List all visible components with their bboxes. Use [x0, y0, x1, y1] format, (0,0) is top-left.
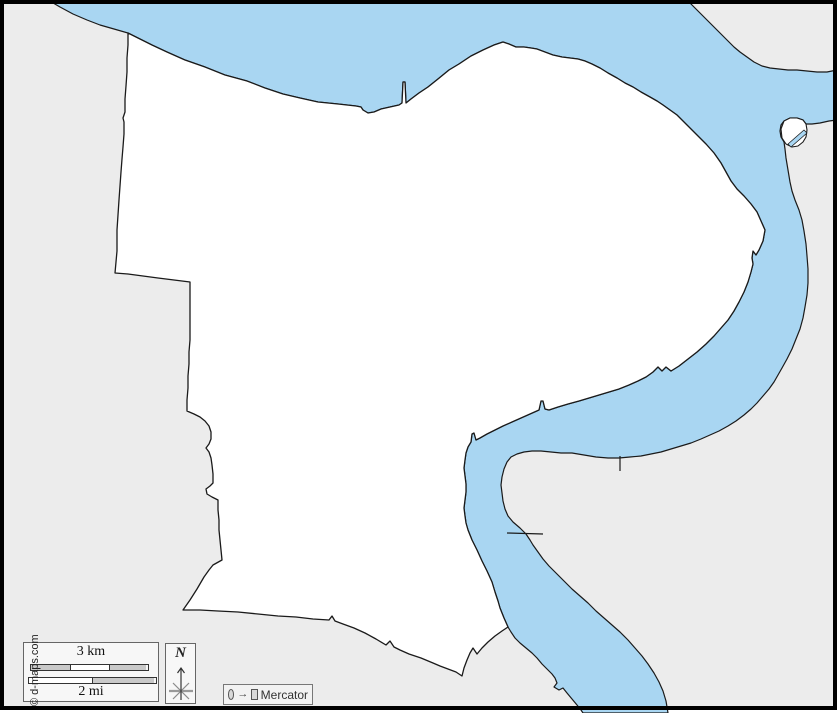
square-icon: [251, 689, 257, 700]
projection-arrow-icon: →: [237, 689, 248, 700]
copyright-credit: © d-maps.com: [29, 634, 41, 706]
scale-bar-mi: [28, 677, 157, 684]
compass-box: N: [165, 643, 196, 704]
outline-map: [0, 0, 837, 713]
scale-segment: [92, 678, 154, 683]
projection-box: → Mercator: [223, 684, 313, 705]
scale-bar-km: [30, 664, 149, 671]
scale-bar-box: 3 km 2 mi: [23, 642, 159, 702]
scale-km-label: 3 km: [24, 644, 158, 660]
projection-name: Mercator: [261, 688, 308, 702]
north-arrow-icon: [168, 664, 194, 704]
compass-north-label: N: [166, 645, 195, 662]
scale-segment: [70, 665, 109, 670]
scale-mi-label: 2 mi: [24, 684, 158, 700]
scale-segment: [109, 665, 146, 670]
circle-icon: [228, 689, 234, 700]
map-page: 3 km 2 mi N → Mercator © d-maps.com: [0, 0, 837, 713]
